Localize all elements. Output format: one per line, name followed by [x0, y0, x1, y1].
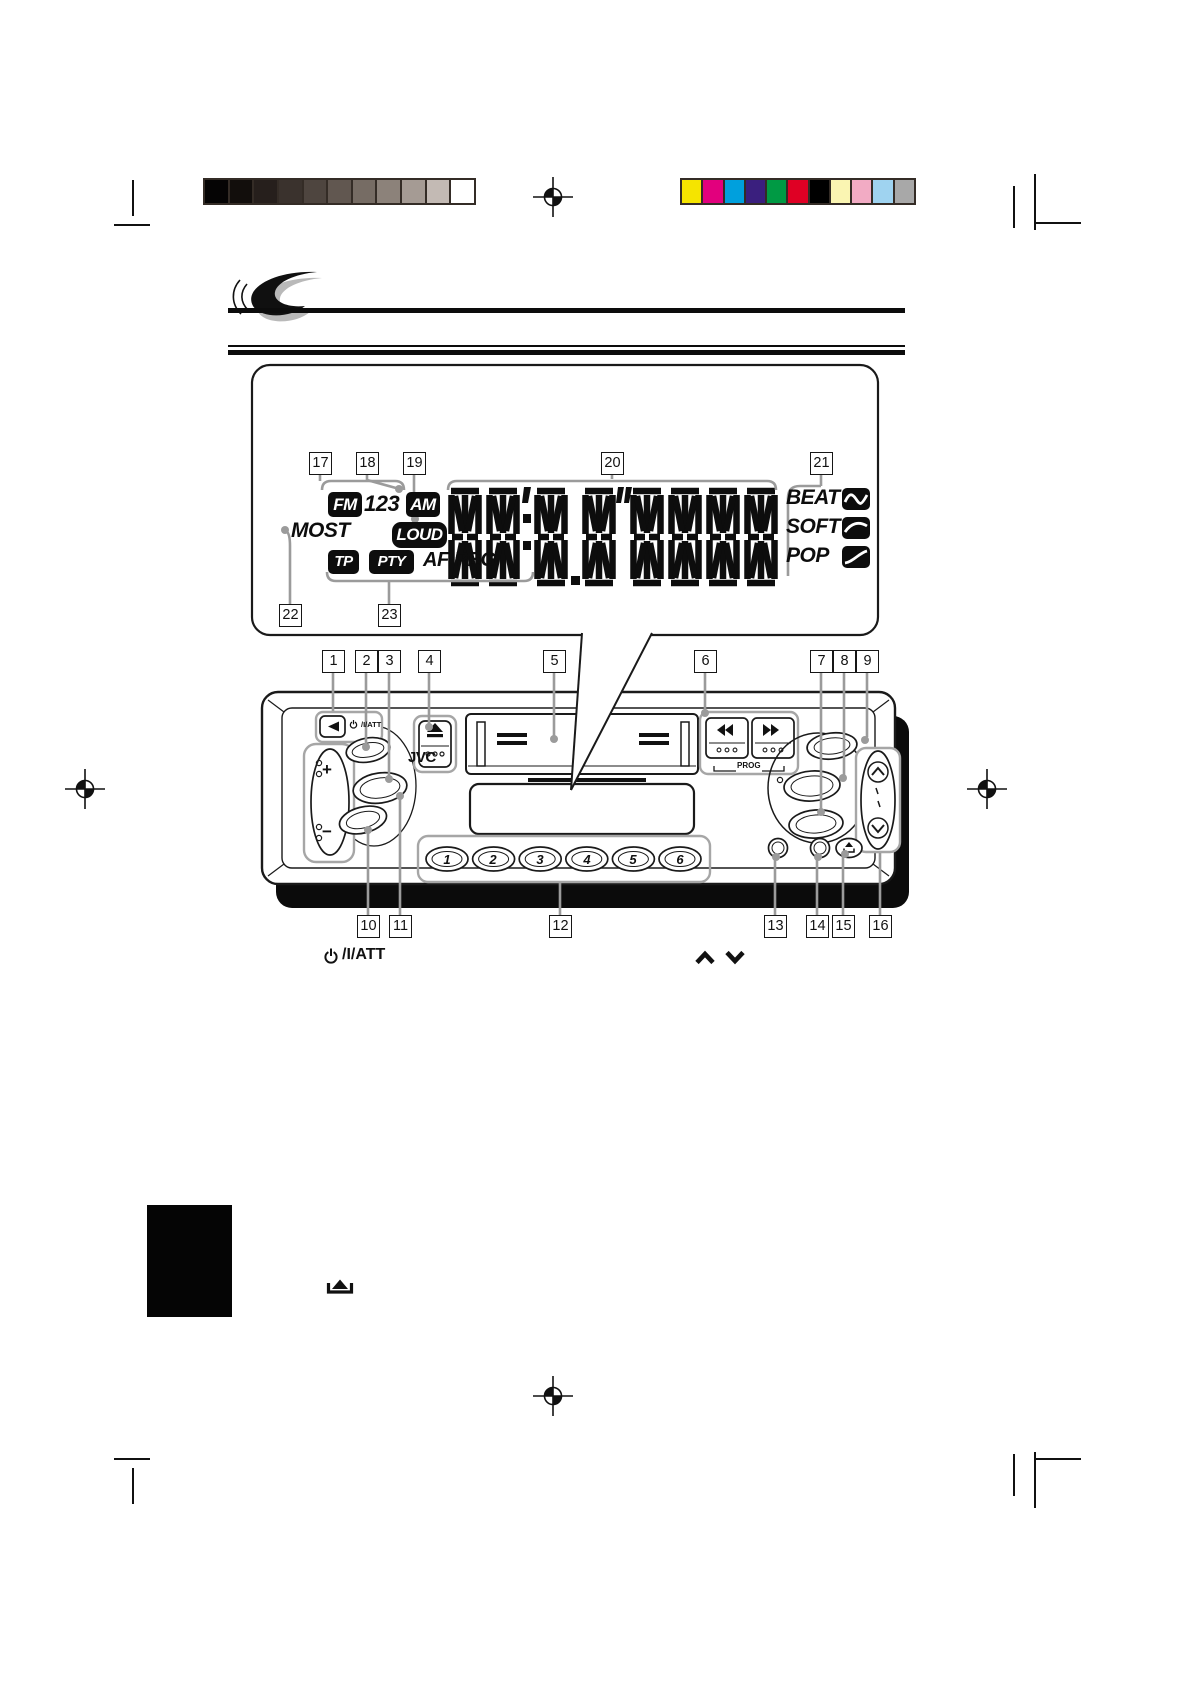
calibration-swatch	[328, 180, 351, 203]
calibration-swatch	[895, 180, 914, 203]
callout-17: 17	[309, 452, 332, 475]
calibration-swatch	[304, 180, 327, 203]
preset-button-6-label: 6	[670, 852, 690, 867]
footnote-power-att-text: /I/ATT	[342, 946, 385, 964]
callout-16: 16	[869, 915, 892, 938]
grayscale-calibration-bar	[203, 178, 476, 205]
manual-page: 17 18 19 20 21 22 23 FM 123 AM MOST LOUD…	[0, 0, 1190, 1684]
calibration-swatch	[682, 180, 701, 203]
callout-6: 6	[694, 650, 717, 673]
callout-13: 13	[764, 915, 787, 938]
callout-5: 5	[543, 650, 566, 673]
registration-mark-left	[65, 769, 105, 809]
pop-wave-icon	[842, 546, 870, 568]
most-indicator: MOST	[291, 519, 350, 543]
calibration-swatch	[767, 180, 786, 203]
registration-mark-bottom	[533, 1376, 573, 1416]
callout-1: 1	[322, 650, 345, 673]
power-icon	[323, 947, 339, 964]
volume-minus-label: −	[322, 822, 332, 842]
pop-label: POP	[786, 544, 829, 568]
calibration-swatch	[205, 180, 228, 203]
section-tab-block	[147, 1205, 232, 1317]
calibration-swatch	[810, 180, 829, 203]
callout-2: 2	[355, 650, 378, 673]
up-arrow-icon	[694, 950, 716, 965]
callout-10: 10	[357, 915, 380, 938]
line-art-layer	[0, 0, 1190, 1684]
calibration-swatch	[377, 180, 400, 203]
power-att-small-text: /I/ATT	[361, 720, 381, 729]
door-slot	[528, 778, 646, 782]
loud-indicator: LOUD	[392, 522, 447, 548]
soft-label: SOFT	[786, 515, 840, 539]
calibration-swatch	[703, 180, 722, 203]
calibration-swatch	[254, 180, 277, 203]
callout-21: 21	[810, 452, 833, 475]
tp-indicator: TP	[328, 550, 359, 574]
callout-22: 22	[279, 604, 302, 627]
brand-crescent-logo	[233, 272, 322, 322]
beat-wave-icon	[842, 488, 870, 510]
up-down-rocker	[856, 748, 900, 852]
color-calibration-bar	[680, 178, 916, 205]
preset-button-3-label: 3	[530, 852, 550, 867]
calibration-swatch	[427, 180, 450, 203]
callout-14: 14	[806, 915, 829, 938]
preset-button-1-label: 1	[437, 852, 457, 867]
callout-20: 20	[601, 452, 624, 475]
callout-11: 11	[389, 915, 412, 938]
calibration-swatch	[353, 180, 376, 203]
registration-mark-top	[533, 177, 573, 217]
jvc-brand-logo: JVC	[408, 749, 436, 766]
callout-12: 12	[549, 915, 572, 938]
beat-label: BEAT	[786, 486, 840, 510]
preset-button-5-label: 5	[623, 852, 643, 867]
callout-18: 18	[356, 452, 379, 475]
calibration-swatch	[873, 180, 892, 203]
pty-indicator: PTY	[369, 550, 414, 574]
sound-mode-icons	[842, 488, 870, 568]
calibration-swatch	[831, 180, 850, 203]
section-rules	[228, 308, 905, 355]
display-window	[470, 784, 694, 834]
eject-release-icon	[329, 1280, 352, 1293]
callout-9: 9	[856, 650, 879, 673]
preset-number-indicator: 123	[364, 491, 399, 517]
calibration-swatch	[230, 180, 253, 203]
callout-23: 23	[378, 604, 401, 627]
callout-19: 19	[403, 452, 426, 475]
registration-mark-right	[967, 769, 1007, 809]
calibration-swatch	[788, 180, 807, 203]
preset-button-2-label: 2	[483, 852, 503, 867]
calibration-swatch	[746, 180, 765, 203]
footnote-updown-arrows	[694, 950, 746, 965]
callout-8: 8	[833, 650, 856, 673]
calibration-swatch	[852, 180, 871, 203]
calibration-swatch	[725, 180, 744, 203]
soft-wave-icon	[842, 517, 870, 539]
footnote-power-att: /I/ATT	[323, 946, 385, 964]
volume-plus-label: +	[322, 760, 332, 780]
callout-3: 3	[378, 650, 401, 673]
callout-15: 15	[832, 915, 855, 938]
down-arrow-icon	[724, 950, 746, 965]
am-indicator: AM	[406, 492, 440, 517]
prog-label: PROG	[737, 761, 761, 770]
power-icon	[349, 719, 358, 729]
calibration-swatch	[279, 180, 302, 203]
calibration-swatch	[451, 180, 474, 203]
callout-7: 7	[810, 650, 833, 673]
af-reg-indicator: AF REG	[423, 549, 496, 572]
fm-indicator: FM	[328, 492, 362, 517]
callout-4: 4	[418, 650, 441, 673]
calibration-swatch	[402, 180, 425, 203]
power-att-small-label: /I/ATT	[349, 719, 381, 729]
preset-button-4-label: 4	[577, 852, 597, 867]
